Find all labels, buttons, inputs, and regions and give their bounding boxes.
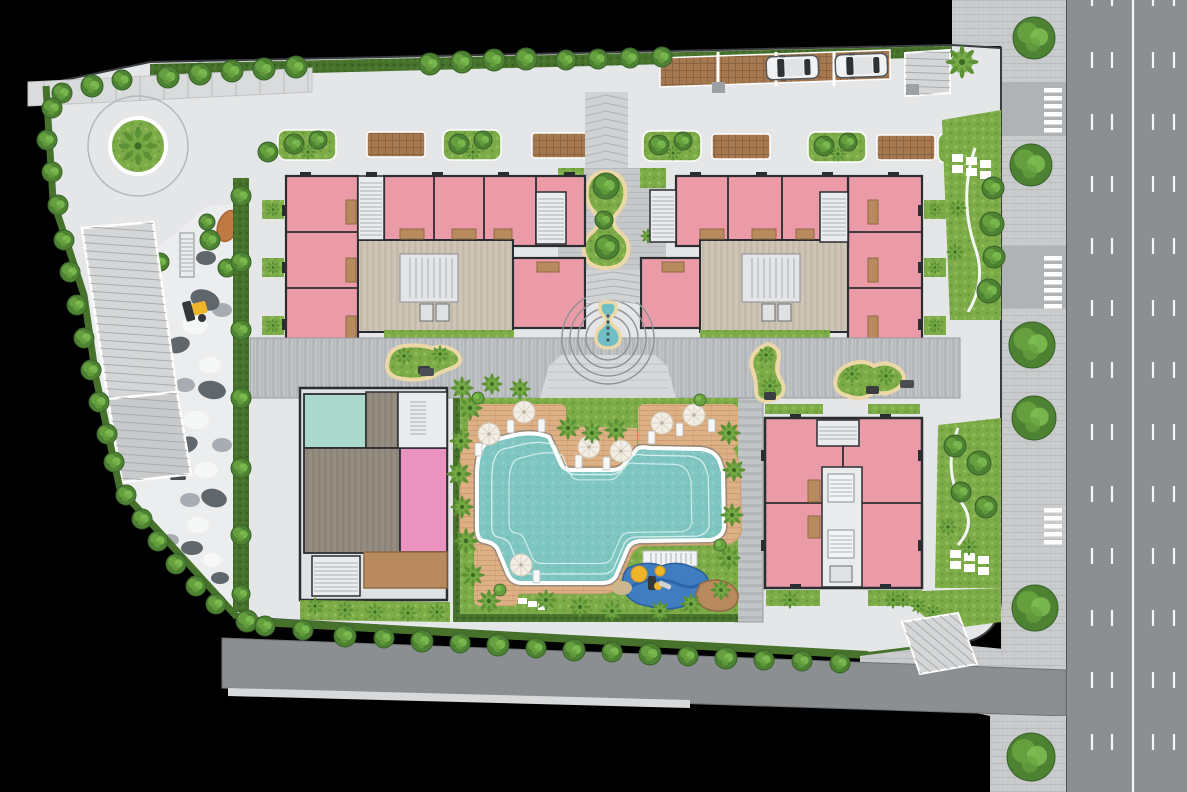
stepping-stone	[950, 561, 961, 569]
play-structure	[198, 314, 206, 322]
entrance-mark	[918, 540, 923, 551]
tree	[255, 616, 275, 636]
building-cluster-northeast	[641, 176, 922, 344]
palm-tree	[895, 592, 911, 608]
front-lawn-strip	[384, 330, 514, 338]
tree	[1007, 733, 1055, 781]
paving-blob	[180, 493, 200, 507]
palm-tree	[119, 127, 158, 166]
bath-pod	[808, 516, 820, 538]
clubhouse-wood-roof	[304, 448, 400, 553]
front-lawn-strip	[700, 330, 830, 338]
palm-tree	[939, 518, 956, 535]
median-green-island	[443, 130, 501, 160]
bath-pod	[346, 258, 356, 282]
column-pad	[906, 84, 919, 95]
entrance-mark	[498, 172, 509, 177]
pool-lounger	[507, 420, 514, 433]
bush	[472, 392, 484, 404]
palm-tree	[428, 603, 445, 620]
pool-lounger	[475, 443, 482, 456]
palm-tree	[556, 416, 579, 439]
tree	[81, 360, 101, 380]
master-plan-svg	[0, 0, 1187, 792]
entrance-mark	[366, 172, 377, 177]
tree	[199, 214, 215, 230]
bath-pod	[868, 316, 878, 340]
paving-blob	[194, 462, 218, 478]
entrance-mark	[761, 450, 766, 461]
stepping-stone	[518, 598, 527, 604]
hedge-column	[231, 178, 251, 612]
median-pergola	[367, 132, 425, 157]
entrance-mark	[880, 414, 891, 419]
tree	[674, 132, 692, 150]
entrance-mark	[888, 172, 899, 177]
tree	[593, 173, 619, 199]
tree	[556, 50, 576, 70]
palm-tree	[665, 145, 681, 161]
stepping-stone	[952, 154, 963, 162]
tree	[967, 451, 991, 475]
tree	[951, 482, 971, 502]
splash-toy	[631, 566, 647, 582]
clubhouse-wood-roof	[366, 392, 398, 448]
median-pergola	[712, 134, 770, 159]
bench	[900, 380, 914, 388]
tree	[116, 485, 136, 505]
palm-tree	[928, 203, 942, 217]
palm-tree	[946, 46, 979, 79]
organic-planter	[835, 362, 904, 398]
tree	[104, 452, 124, 472]
tree	[1010, 144, 1052, 186]
clubhouse-service-rooms	[364, 552, 447, 588]
stair-core	[536, 192, 566, 244]
clubhouse-teal-hall	[304, 394, 366, 448]
palm-tree	[601, 600, 622, 621]
palm-tree	[946, 243, 963, 260]
bath-pod	[346, 316, 356, 340]
entrance-mark	[761, 540, 766, 551]
palm-tree	[535, 589, 556, 610]
palm-tree	[680, 593, 701, 614]
tree	[232, 585, 250, 603]
entrance-mark	[918, 450, 923, 461]
utility-room	[400, 254, 458, 302]
tree	[42, 162, 62, 182]
median-green-island	[808, 132, 866, 162]
tree	[1009, 322, 1055, 368]
fountain-sculpture	[606, 332, 609, 335]
entry-garden	[924, 200, 946, 219]
paving-blob	[212, 438, 232, 452]
tree	[754, 650, 774, 670]
tree	[284, 134, 304, 154]
tree	[602, 642, 622, 662]
pool-lounger	[708, 419, 715, 432]
entrance-mark	[918, 205, 923, 216]
stepping-stone	[966, 168, 977, 176]
entrance-mark	[822, 172, 833, 177]
tree	[450, 633, 470, 653]
tree	[649, 135, 669, 155]
tree	[231, 186, 251, 206]
tree	[449, 134, 469, 154]
bath-pod	[537, 262, 559, 272]
bath-pod	[700, 229, 724, 239]
bath-pod	[868, 200, 878, 224]
palm-tree	[717, 421, 740, 444]
entrance-mark	[282, 319, 287, 330]
tree	[595, 235, 619, 259]
tree	[411, 630, 433, 652]
tree	[285, 56, 307, 78]
tree	[374, 628, 394, 648]
entry-drive	[585, 92, 628, 172]
tree	[293, 620, 313, 640]
palm-tree	[300, 144, 316, 160]
entrance-mark	[880, 584, 891, 589]
elevator	[778, 304, 791, 321]
tree	[253, 58, 275, 80]
entrance-mark	[918, 319, 923, 330]
tree	[474, 131, 492, 149]
entrance-mark	[282, 262, 287, 273]
entrance-mark	[790, 584, 801, 589]
palm-tree	[949, 199, 966, 216]
bath-pod	[662, 262, 684, 272]
entrance-mark	[282, 205, 287, 216]
stair-core	[650, 190, 676, 242]
sidewalk-pavers	[952, 0, 1001, 46]
car	[835, 52, 888, 80]
entrance-mark	[690, 172, 701, 177]
tree	[37, 130, 57, 150]
median-green-island	[643, 131, 701, 161]
tree	[74, 328, 94, 348]
palm-tree	[453, 528, 478, 553]
tree	[639, 643, 661, 665]
entry-garden	[924, 258, 946, 277]
entry-garden	[262, 200, 284, 219]
pool-lounger	[533, 570, 540, 583]
pool-lounger	[676, 423, 683, 436]
tree	[483, 49, 505, 71]
fountain-sculpture	[606, 314, 609, 317]
stepping-stone	[980, 160, 991, 168]
stepping-stone	[978, 556, 989, 564]
palm-tree	[336, 601, 353, 618]
umbrella	[683, 404, 705, 426]
bath-pod	[494, 229, 512, 239]
elevator	[830, 566, 852, 582]
apartment-wing	[848, 176, 922, 344]
paving-blob	[175, 378, 195, 392]
paving-blob	[187, 517, 209, 533]
pool-lounger	[538, 419, 545, 432]
entry-garden	[262, 258, 284, 277]
stepping-stone	[950, 550, 961, 558]
bush	[494, 584, 506, 596]
palm-tree	[446, 461, 471, 486]
main-road	[1066, 0, 1187, 792]
median-pergola	[532, 133, 590, 158]
tree	[620, 48, 640, 68]
palm-tree	[366, 603, 383, 620]
bush	[694, 394, 706, 406]
palm-tree	[581, 422, 602, 443]
entry-garden	[262, 316, 284, 335]
umbrella	[651, 412, 673, 434]
paving-blob	[196, 251, 216, 265]
entrance-mark	[564, 172, 575, 177]
median-green-island	[278, 130, 336, 160]
tree	[982, 177, 1004, 199]
tree	[515, 48, 537, 70]
palm-tree	[757, 346, 774, 363]
tree	[206, 594, 226, 614]
tree	[983, 246, 1005, 268]
organic-planter	[751, 344, 783, 401]
tree	[1012, 585, 1058, 631]
umbrella	[513, 401, 535, 423]
elevator	[420, 304, 433, 321]
tree	[839, 133, 857, 151]
tree	[526, 638, 546, 658]
paving-blob	[211, 572, 229, 584]
palm-tree	[928, 261, 942, 275]
tree	[231, 388, 251, 408]
splash-toy	[655, 566, 665, 576]
palm-tree	[395, 347, 412, 364]
pool-hedge	[455, 614, 738, 622]
building-cluster-northwest	[286, 176, 585, 344]
paving-blob	[199, 357, 221, 373]
tree	[89, 392, 109, 412]
tree	[42, 98, 62, 118]
paving-blob	[203, 553, 221, 567]
tree	[148, 531, 168, 551]
palm-tree	[604, 418, 627, 441]
palm-tree	[722, 458, 745, 481]
umbrella	[510, 554, 532, 576]
palm-tree	[465, 144, 481, 160]
tree	[334, 625, 356, 647]
bath-pod	[868, 258, 878, 282]
tree	[814, 136, 834, 156]
tree	[48, 195, 68, 215]
palm-tree	[569, 596, 590, 617]
palm-tree	[830, 146, 846, 162]
palm-tree	[461, 563, 484, 586]
palm-tree	[960, 538, 977, 555]
pool-lounger	[603, 457, 610, 470]
palm-tree	[450, 376, 473, 399]
palm-tree	[481, 373, 502, 394]
tree	[588, 49, 608, 69]
elevator	[436, 304, 449, 321]
tree	[112, 70, 132, 90]
palm-tree	[781, 591, 798, 608]
palm-tree	[843, 365, 860, 382]
tree	[157, 66, 179, 88]
clubhouse	[300, 388, 450, 622]
entry-garden	[924, 316, 946, 335]
bath-pod	[752, 229, 776, 239]
tree	[792, 651, 812, 671]
tree	[1012, 396, 1056, 440]
stepping-stone	[966, 157, 977, 165]
tree	[980, 212, 1004, 236]
tree	[221, 60, 243, 82]
palm-tree	[399, 604, 416, 621]
east-pocket-garden-north	[942, 110, 1005, 320]
paving-blob	[181, 541, 203, 555]
tree	[977, 279, 1001, 303]
bush	[714, 539, 726, 551]
tree	[944, 435, 966, 457]
tree	[97, 424, 117, 444]
stepping-stone	[978, 567, 989, 575]
tree	[231, 320, 251, 340]
palm-tree	[449, 429, 472, 452]
tree	[975, 496, 997, 518]
fountain-sculpture	[606, 320, 609, 323]
palm-tree	[306, 597, 323, 614]
tree	[231, 458, 251, 478]
site-plan-canvas	[0, 0, 1187, 792]
palm-tree	[928, 319, 942, 333]
tree	[563, 639, 585, 661]
utility-room	[742, 254, 800, 302]
tree	[60, 262, 80, 282]
bench	[866, 386, 879, 394]
tree	[132, 509, 152, 529]
tree	[236, 610, 258, 632]
entrance-mark	[790, 414, 801, 419]
tree	[231, 252, 251, 272]
tree	[54, 230, 74, 250]
entrance-mark	[432, 172, 443, 177]
bath-pod	[808, 480, 820, 502]
palm-tree	[266, 203, 280, 217]
building-cluster-southeast	[765, 418, 922, 609]
tree	[67, 295, 87, 315]
tree	[200, 230, 220, 250]
tree	[715, 647, 737, 669]
tree	[186, 576, 206, 596]
plaza-lawn-pocket	[640, 168, 666, 188]
bench	[764, 392, 776, 400]
column-pad	[712, 82, 725, 93]
road-asphalt	[1066, 0, 1187, 792]
tree	[595, 211, 613, 229]
pool-lounger	[575, 455, 582, 468]
palm-tree	[509, 378, 530, 399]
tree	[419, 53, 441, 75]
palm-tree	[266, 261, 280, 275]
palm-tree	[910, 598, 926, 614]
median-pergola	[877, 135, 935, 160]
palm-tree	[710, 579, 731, 600]
umbrella	[478, 423, 500, 445]
umbrella	[610, 440, 632, 462]
paving-blob	[183, 411, 209, 429]
palm-tree	[877, 367, 894, 384]
front-lawn-strip	[765, 404, 823, 414]
pool-complex	[446, 373, 745, 622]
car	[766, 54, 819, 82]
clubhouse-pink-hall	[400, 448, 447, 552]
stepping-stone	[952, 165, 963, 173]
entrance-mark	[918, 262, 923, 273]
bath-pod	[796, 229, 814, 239]
tree	[830, 653, 850, 673]
stair-core	[817, 420, 859, 446]
pool-lounger	[648, 431, 655, 444]
clubhouse-stair-room	[398, 392, 447, 448]
bath-pod	[452, 229, 476, 239]
tree	[487, 634, 509, 656]
tree	[189, 63, 211, 85]
tree	[678, 646, 698, 666]
front-lawn-strip	[868, 404, 920, 414]
entrance-mark	[756, 172, 767, 177]
bath-pod	[346, 200, 356, 224]
tree	[451, 51, 473, 73]
tree	[652, 47, 672, 67]
entrance-mark	[300, 172, 311, 177]
stair-core	[820, 192, 848, 242]
palm-tree	[450, 495, 473, 518]
palm-tree	[649, 600, 670, 621]
bench	[420, 368, 434, 376]
fountain-sculpture	[606, 326, 609, 329]
tree	[1013, 17, 1055, 59]
palm-tree	[266, 319, 280, 333]
stepping-stone	[528, 601, 537, 607]
bath-pod	[400, 229, 424, 239]
tree	[258, 142, 278, 162]
tree	[166, 554, 186, 574]
tree	[309, 131, 327, 149]
palm-tree	[431, 345, 448, 362]
sand-patch	[612, 581, 632, 595]
tree	[81, 75, 103, 97]
stair-core	[358, 176, 384, 240]
palm-tree	[720, 503, 743, 526]
stair-core	[312, 556, 360, 596]
tree	[231, 525, 251, 545]
stepping-stone	[964, 564, 975, 572]
fountain-sculpture	[606, 338, 609, 341]
elevator	[762, 304, 775, 321]
